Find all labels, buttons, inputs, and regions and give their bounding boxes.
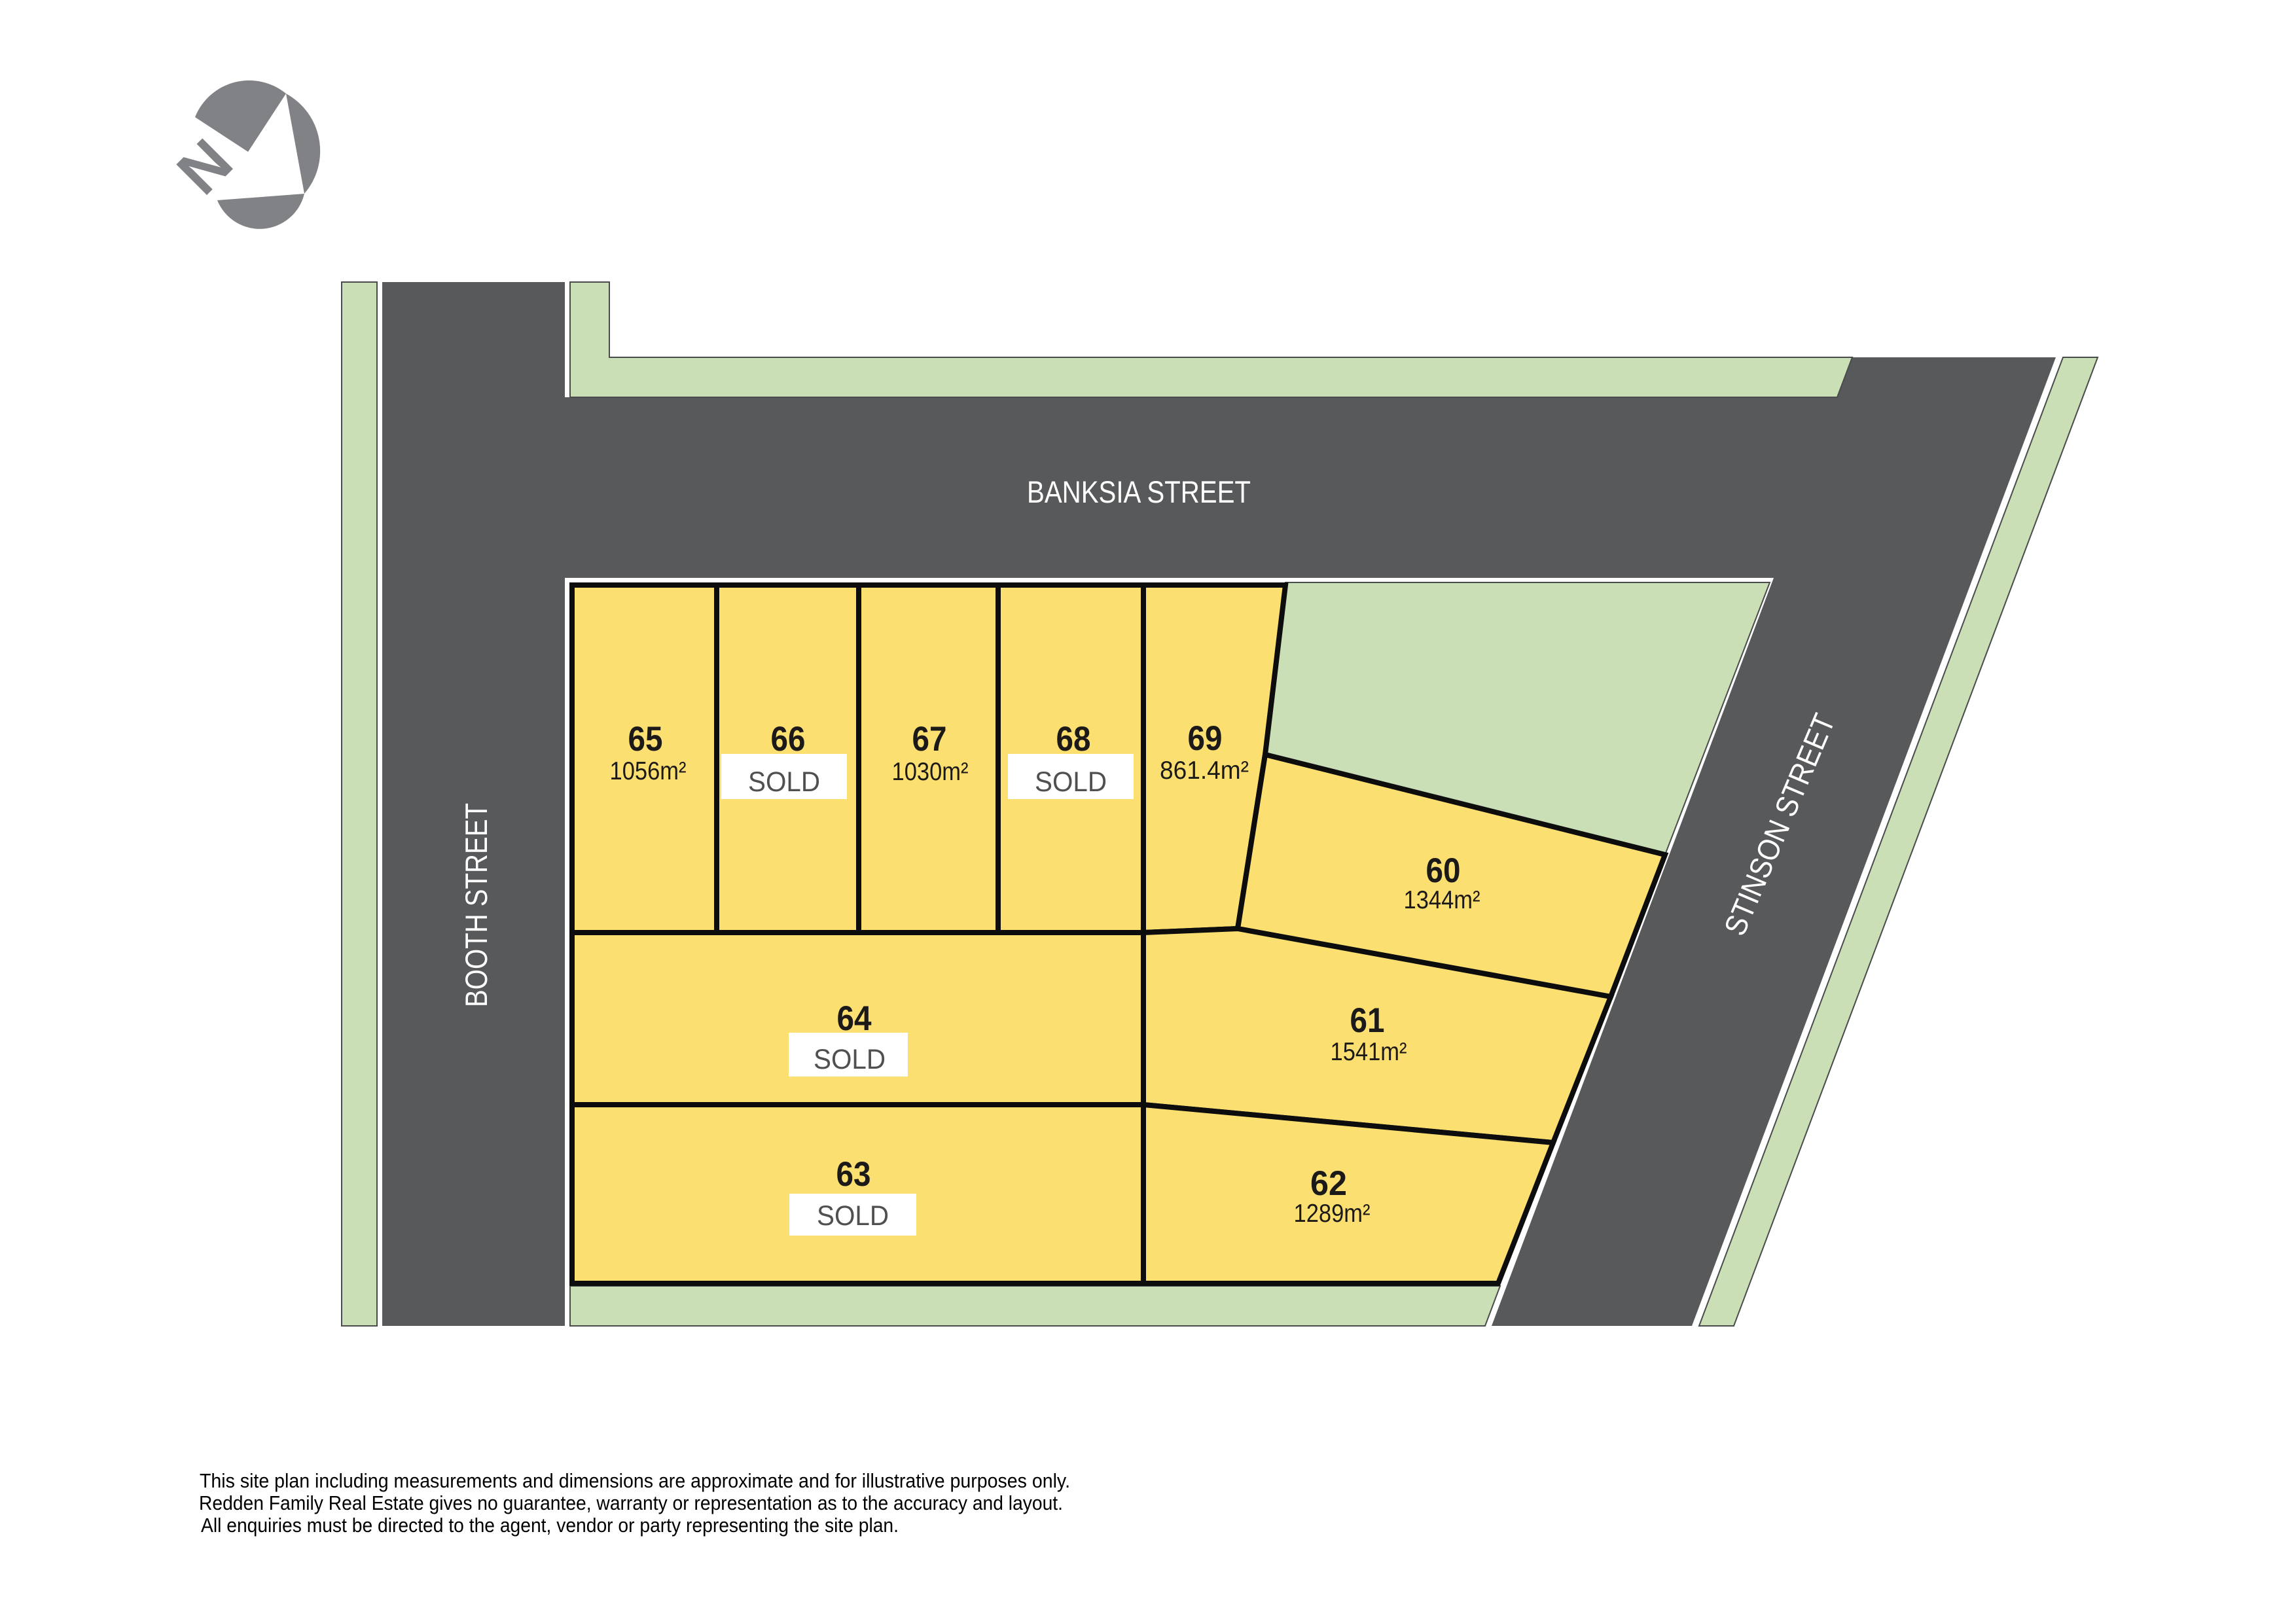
svg-text:Redden Family Real Estate give: Redden Family Real Estate gives no guara… bbox=[199, 1491, 1063, 1514]
svg-text:60: 60 bbox=[1426, 851, 1461, 890]
svg-text:65: 65 bbox=[628, 720, 663, 758]
svg-text:1541m²: 1541m² bbox=[1331, 1038, 1407, 1066]
svg-text:SOLD: SOLD bbox=[817, 1200, 889, 1232]
svg-text:1289m²: 1289m² bbox=[1294, 1200, 1371, 1228]
svg-text:62: 62 bbox=[1310, 1164, 1347, 1203]
svg-text:SOLD: SOLD bbox=[814, 1044, 886, 1075]
svg-text:69: 69 bbox=[1188, 719, 1223, 758]
svg-text:861.4m²: 861.4m² bbox=[1160, 757, 1249, 785]
svg-text:67: 67 bbox=[912, 720, 947, 758]
svg-text:SOLD: SOLD bbox=[748, 766, 820, 798]
svg-text:This site plan including measu: This site plan including measurements an… bbox=[200, 1469, 1070, 1492]
svg-text:61: 61 bbox=[1350, 1001, 1385, 1040]
svg-text:1030m²: 1030m² bbox=[892, 758, 969, 786]
svg-text:1056m²: 1056m² bbox=[610, 757, 687, 785]
svg-text:BANKSIA STREET: BANKSIA STREET bbox=[1027, 474, 1251, 509]
svg-text:64: 64 bbox=[837, 999, 872, 1038]
svg-text:All enquiries must be directed: All enquiries must be directed to the ag… bbox=[201, 1514, 899, 1537]
svg-text:1344m²: 1344m² bbox=[1404, 886, 1480, 914]
svg-text:63: 63 bbox=[836, 1155, 871, 1194]
svg-text:66: 66 bbox=[771, 720, 806, 758]
svg-text:68: 68 bbox=[1056, 720, 1091, 758]
svg-text:BOOTH STREET: BOOTH STREET bbox=[459, 803, 493, 1007]
svg-text:SOLD: SOLD bbox=[1035, 766, 1107, 798]
